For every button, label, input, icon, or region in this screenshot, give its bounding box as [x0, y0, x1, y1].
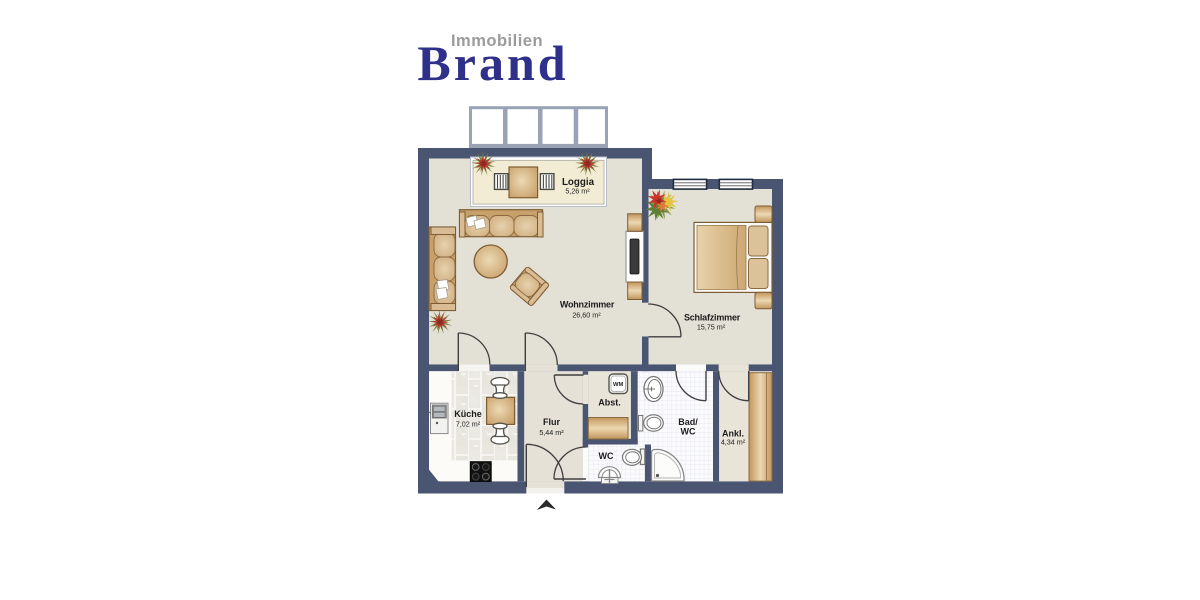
- svg-text:Abst.: Abst.: [598, 398, 621, 408]
- svg-text:26,60 m²: 26,60 m²: [572, 311, 601, 320]
- svg-text:Flur: Flur: [543, 417, 560, 427]
- svg-text:15,75 m²: 15,75 m²: [697, 323, 726, 332]
- svg-text:7,02 m²: 7,02 m²: [456, 420, 481, 429]
- svg-text:WC: WC: [599, 451, 614, 461]
- svg-text:WM: WM: [613, 382, 623, 388]
- svg-text:Brand: Brand: [417, 35, 568, 91]
- svg-text:Wohnzimmer: Wohnzimmer: [560, 300, 615, 310]
- svg-text:Bad/: Bad/: [678, 417, 698, 427]
- svg-text:4,34 m²: 4,34 m²: [721, 438, 746, 447]
- svg-text:5,44 m²: 5,44 m²: [539, 428, 564, 437]
- svg-text:Küche: Küche: [454, 409, 482, 419]
- svg-text:Schlafzimmer: Schlafzimmer: [684, 313, 741, 323]
- svg-text:WC: WC: [681, 427, 696, 437]
- svg-text:5,26 m²: 5,26 m²: [565, 187, 590, 196]
